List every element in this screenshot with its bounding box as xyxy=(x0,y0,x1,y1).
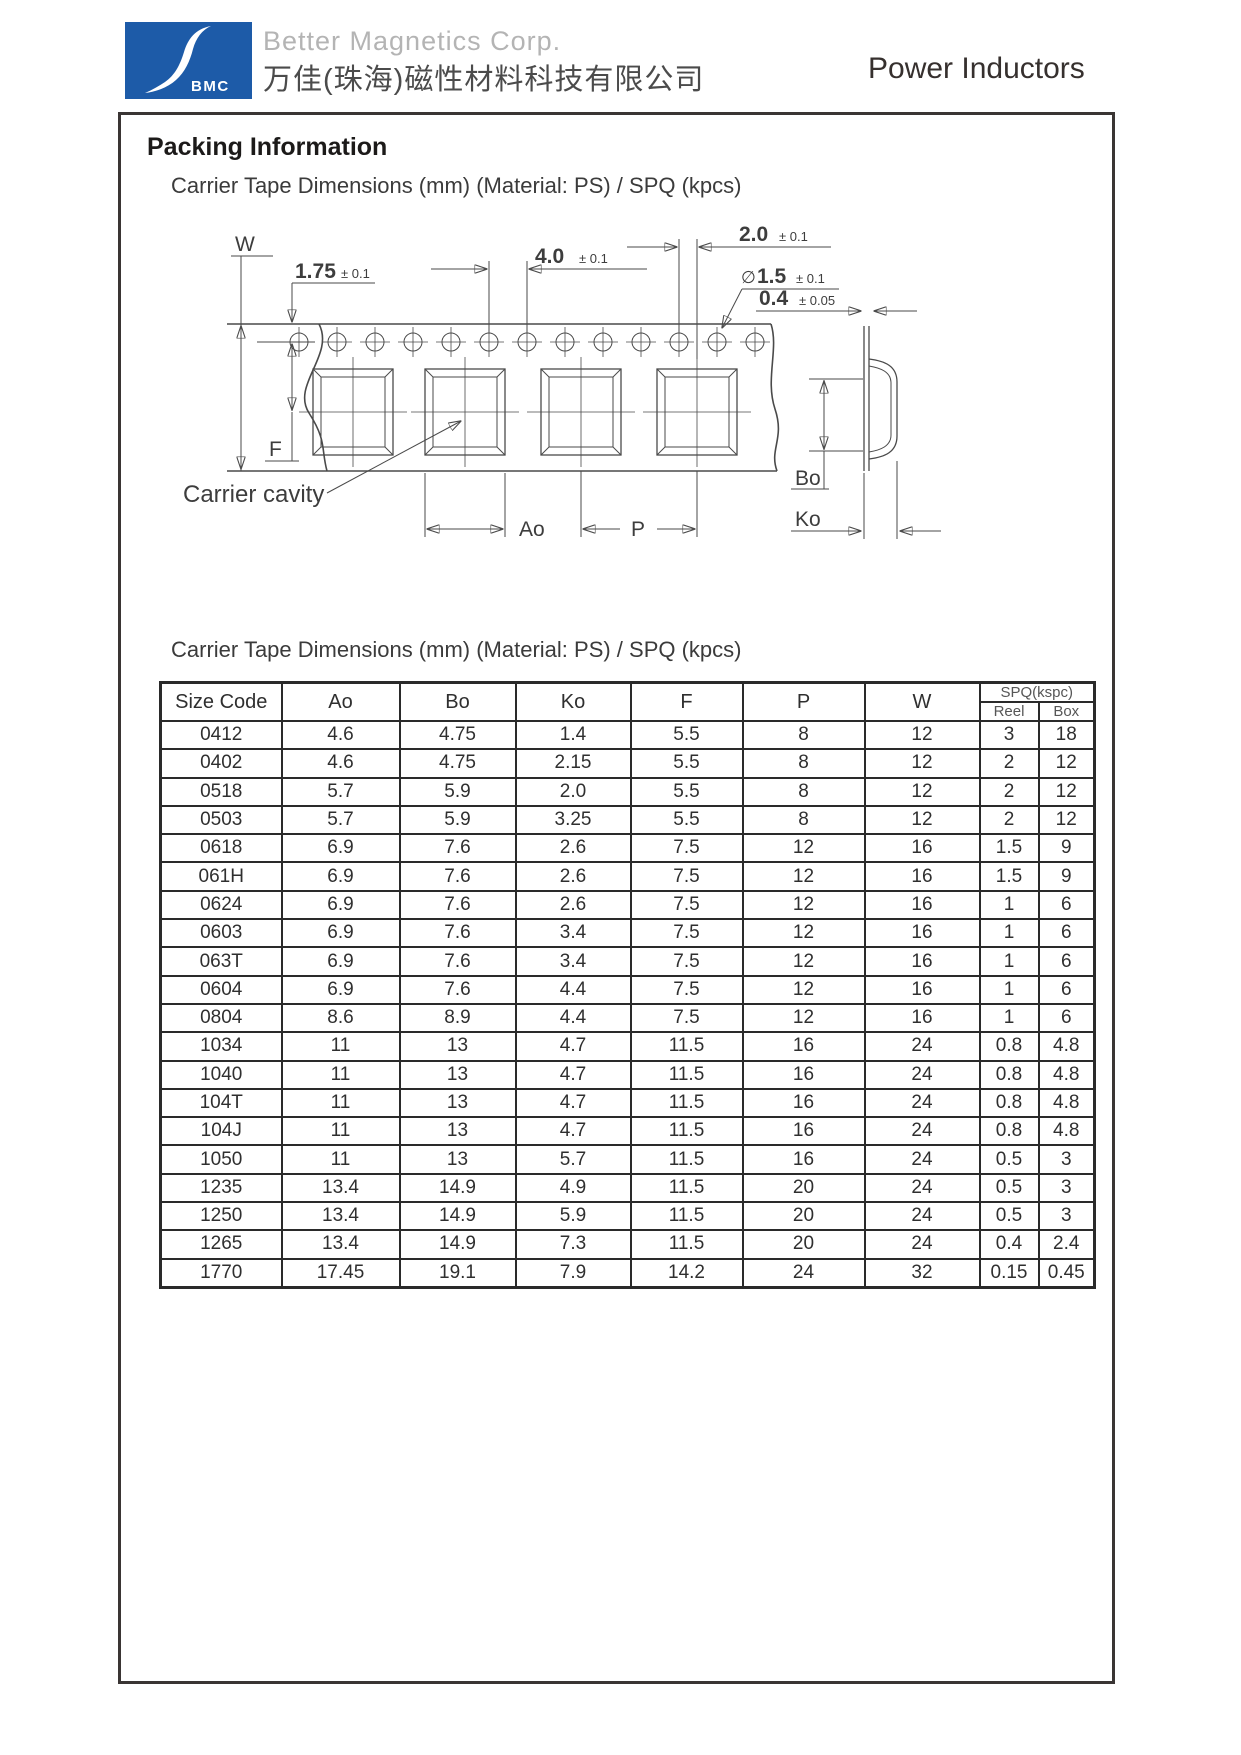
section-title: Packing Information xyxy=(147,133,387,162)
table-cell: 2 xyxy=(980,806,1039,834)
carrier-tape-drawing: W 1.75 ± 0.1 F 4.0 ± 0.1 xyxy=(179,199,949,559)
bmc-logo: BMC xyxy=(125,22,252,99)
table-cell: 7.9 xyxy=(516,1259,631,1288)
table-cell: 4.7 xyxy=(516,1089,631,1117)
table-cell: 0.5 xyxy=(980,1174,1039,1202)
table-cell: 1.5 xyxy=(980,862,1039,890)
table-cell: 13.4 xyxy=(282,1230,400,1258)
table-cell: 1.4 xyxy=(516,721,631,749)
col-header-size-code: Size Code xyxy=(161,683,282,722)
table-row: 04024.64.752.155.5812212 xyxy=(161,749,1095,777)
table-cell: 14.9 xyxy=(400,1230,516,1258)
section-cavity-outer xyxy=(869,359,897,459)
table-row: 08048.68.94.47.5121616 xyxy=(161,1004,1095,1032)
col-header-f: F xyxy=(631,683,743,722)
table-cell: 1.5 xyxy=(980,834,1039,862)
table-row: 104J11134.711.516240.84.8 xyxy=(161,1117,1095,1145)
table-cell: 7.6 xyxy=(400,947,516,975)
table-cell: 7.3 xyxy=(516,1230,631,1258)
table-cell: 0518 xyxy=(161,778,282,806)
table-cell: 12 xyxy=(865,749,980,777)
table-cell: 24 xyxy=(865,1032,980,1060)
table-cell: 13 xyxy=(400,1061,516,1089)
table-cell: 6 xyxy=(1039,919,1095,947)
table-cell: 14.9 xyxy=(400,1202,516,1230)
table-cell: 18 xyxy=(1039,721,1095,749)
col-header-box: Box xyxy=(1039,702,1095,721)
tape-torn-edge-right xyxy=(771,324,778,471)
table-cell: 11 xyxy=(282,1117,400,1145)
table-cell: 2.6 xyxy=(516,862,631,890)
diagram-title: Carrier Tape Dimensions (mm) (Material: … xyxy=(171,173,742,199)
table-cell: 14.9 xyxy=(400,1174,516,1202)
table-cell: 0603 xyxy=(161,919,282,947)
table-cell: 1250 xyxy=(161,1202,282,1230)
table-cell: 0.45 xyxy=(1039,1259,1095,1288)
carrier-tape-dimensions-table: Size Code Ao Bo Ko F P W SPQ(kspc) Reel … xyxy=(159,681,1096,1289)
table-cell: 3.4 xyxy=(516,947,631,975)
col-header-spq: SPQ(kspc) xyxy=(980,683,1095,703)
table-cell: 12 xyxy=(1039,778,1095,806)
table-cell: 8 xyxy=(743,721,865,749)
table-cell: 12 xyxy=(865,721,980,749)
table-cell: 7.5 xyxy=(631,919,743,947)
table-cell: 9 xyxy=(1039,862,1095,890)
content-frame: Packing Information Carrier Tape Dimensi… xyxy=(118,112,1115,1684)
table-cell: 1 xyxy=(980,919,1039,947)
table-cell: 0.5 xyxy=(980,1145,1039,1173)
table-cell: 7.6 xyxy=(400,834,516,862)
table-cell: 1 xyxy=(980,976,1039,1004)
table-cell: 7.5 xyxy=(631,862,743,890)
table-cell: 13.4 xyxy=(282,1202,400,1230)
table-cell: 1034 xyxy=(161,1032,282,1060)
table-cell: 4.6 xyxy=(282,721,400,749)
table-cell: 20 xyxy=(743,1230,865,1258)
table-cell: 5.7 xyxy=(516,1145,631,1173)
table-cell: 5.9 xyxy=(400,806,516,834)
table-cell: 6 xyxy=(1039,947,1095,975)
table-cell: 13 xyxy=(400,1145,516,1173)
table-cell: 4.8 xyxy=(1039,1032,1095,1060)
carrier-cavity-label: Carrier cavity xyxy=(183,481,324,508)
dim-hole-to-cavity-tol: ± 0.1 xyxy=(779,229,808,244)
table-cell: 4.8 xyxy=(1039,1089,1095,1117)
table-cell: 24 xyxy=(865,1230,980,1258)
dim-thickness: 0.4 xyxy=(759,287,789,310)
table-cell: 16 xyxy=(865,1004,980,1032)
table-cell: 12 xyxy=(865,806,980,834)
table-cell: 32 xyxy=(865,1259,980,1288)
dim-sprocket-edge-tol: ± 0.1 xyxy=(341,266,370,281)
carrier-cavities xyxy=(299,357,751,467)
table-cell: 12 xyxy=(743,947,865,975)
table-cell: 0.8 xyxy=(980,1089,1039,1117)
table-cell: 4.7 xyxy=(516,1032,631,1060)
table-cell: 0.8 xyxy=(980,1032,1039,1060)
table-cell: 104J xyxy=(161,1117,282,1145)
table-cell: 11.5 xyxy=(631,1117,743,1145)
table-row: 06046.97.64.47.5121616 xyxy=(161,976,1095,1004)
table-cell: 24 xyxy=(865,1061,980,1089)
table-cell: 0804 xyxy=(161,1004,282,1032)
table-row: 061H6.97.62.67.512161.59 xyxy=(161,862,1095,890)
table-cell: 11.5 xyxy=(631,1145,743,1173)
table-cell: 11.5 xyxy=(631,1230,743,1258)
dim-hole-dia-tol: ± 0.1 xyxy=(796,271,825,286)
table-cell: 24 xyxy=(865,1117,980,1145)
table-cell: 20 xyxy=(743,1174,865,1202)
table-cell: 6.9 xyxy=(282,834,400,862)
table-cell: 12 xyxy=(743,862,865,890)
table-row: 103411134.711.516240.84.8 xyxy=(161,1032,1095,1060)
table-cell: 2.15 xyxy=(516,749,631,777)
table-cell: 6.9 xyxy=(282,919,400,947)
table-cell: 16 xyxy=(865,947,980,975)
table-cell: 2 xyxy=(980,778,1039,806)
col-header-p: P xyxy=(743,683,865,722)
table-cell: 8 xyxy=(743,778,865,806)
table-cell: 11.5 xyxy=(631,1089,743,1117)
table-cell: 0.5 xyxy=(980,1202,1039,1230)
table-cell: 0412 xyxy=(161,721,282,749)
table-cell: 20 xyxy=(743,1202,865,1230)
table-cell: 4.6 xyxy=(282,749,400,777)
col-header-reel: Reel xyxy=(980,702,1039,721)
table-cell: 12 xyxy=(743,976,865,1004)
table-row: 125013.414.95.911.520240.53 xyxy=(161,1202,1095,1230)
table-cell: 1 xyxy=(980,1004,1039,1032)
table-cell: 1235 xyxy=(161,1174,282,1202)
table-cell: 6 xyxy=(1039,976,1095,1004)
table-cell: 16 xyxy=(743,1145,865,1173)
table-cell: 17.45 xyxy=(282,1259,400,1288)
col-header-ao: Ao xyxy=(282,683,400,722)
dim-p-label: P xyxy=(631,518,645,541)
table-cell: 1265 xyxy=(161,1230,282,1258)
table-cell: 7.6 xyxy=(400,919,516,947)
table-cell: 16 xyxy=(865,976,980,1004)
table-cell: 16 xyxy=(865,862,980,890)
table-cell: 7.5 xyxy=(631,947,743,975)
table-cell: 12 xyxy=(865,778,980,806)
table-cell: 063T xyxy=(161,947,282,975)
table-cell: 0618 xyxy=(161,834,282,862)
table-cell: 7.5 xyxy=(631,976,743,1004)
table-row: 104011134.711.516240.84.8 xyxy=(161,1061,1095,1089)
table-cell: 1040 xyxy=(161,1061,282,1089)
table-row: 06186.97.62.67.512161.59 xyxy=(161,834,1095,862)
table-row: 04124.64.751.45.5812318 xyxy=(161,721,1095,749)
table-cell: 4.75 xyxy=(400,721,516,749)
table-cell: 11.5 xyxy=(631,1202,743,1230)
table-cell: 0.4 xyxy=(980,1230,1039,1258)
table-cell: 2.6 xyxy=(516,834,631,862)
table-cell: 2.4 xyxy=(1039,1230,1095,1258)
table-cell: 24 xyxy=(743,1259,865,1288)
table-cell: 7.6 xyxy=(400,891,516,919)
table-row: 06036.97.63.47.5121616 xyxy=(161,919,1095,947)
table-cell: 5.5 xyxy=(631,749,743,777)
table-cell: 0503 xyxy=(161,806,282,834)
product-line-title: Power Inductors xyxy=(868,52,1085,86)
table-cell: 14.2 xyxy=(631,1259,743,1288)
table-cell: 12 xyxy=(743,919,865,947)
table-cell: 8 xyxy=(743,806,865,834)
table-cell: 11.5 xyxy=(631,1061,743,1089)
table-cell: 1050 xyxy=(161,1145,282,1173)
table-cell: 13 xyxy=(400,1032,516,1060)
table-row: 104T11134.711.516240.84.8 xyxy=(161,1089,1095,1117)
table-cell: 6.9 xyxy=(282,976,400,1004)
table-cell: 2 xyxy=(980,749,1039,777)
table-cell: 11 xyxy=(282,1032,400,1060)
table-cell: 8.6 xyxy=(282,1004,400,1032)
table-cell: 16 xyxy=(865,891,980,919)
table-cell: 3.25 xyxy=(516,806,631,834)
table-cell: 4.8 xyxy=(1039,1117,1095,1145)
table-row: 06246.97.62.67.5121616 xyxy=(161,891,1095,919)
table-cell: 104T xyxy=(161,1089,282,1117)
table-cell: 4.4 xyxy=(516,976,631,1004)
table-cell: 2.6 xyxy=(516,891,631,919)
table-cell: 7.6 xyxy=(400,862,516,890)
table-title: Carrier Tape Dimensions (mm) (Material: … xyxy=(171,637,742,663)
table-cell: 16 xyxy=(743,1032,865,1060)
table-row: 05035.75.93.255.5812212 xyxy=(161,806,1095,834)
col-header-ko: Ko xyxy=(516,683,631,722)
table-cell: 9 xyxy=(1039,834,1095,862)
company-name-zh: 万佳(珠海)磁性材料科技有限公司 xyxy=(263,56,704,98)
table-cell: 4.7 xyxy=(516,1117,631,1145)
table-cell: 11 xyxy=(282,1145,400,1173)
table-cell: 12 xyxy=(743,891,865,919)
table-cell: 3 xyxy=(1039,1174,1095,1202)
table-cell: 1770 xyxy=(161,1259,282,1288)
table-cell: 11 xyxy=(282,1061,400,1089)
table-cell: 6 xyxy=(1039,891,1095,919)
table-cell: 16 xyxy=(743,1117,865,1145)
table-cell: 3 xyxy=(1039,1202,1095,1230)
table-cell: 11.5 xyxy=(631,1174,743,1202)
dim-bo-label: Bo xyxy=(795,467,821,490)
logo-text: BMC xyxy=(191,78,230,95)
table-cell: 13 xyxy=(400,1089,516,1117)
table-cell: 4.9 xyxy=(516,1174,631,1202)
table-cell: 16 xyxy=(743,1061,865,1089)
table-cell: 0402 xyxy=(161,749,282,777)
dim-hole-to-cavity: 2.0 xyxy=(739,223,768,246)
table-cell: 0624 xyxy=(161,891,282,919)
table-cell: 11 xyxy=(282,1089,400,1117)
table-cell: 7.5 xyxy=(631,891,743,919)
table-cell: 061H xyxy=(161,862,282,890)
table-cell: 12 xyxy=(1039,749,1095,777)
table-cell: 5.9 xyxy=(516,1202,631,1230)
table-cell: 7.5 xyxy=(631,1004,743,1032)
table-cell: 5.9 xyxy=(400,778,516,806)
table-cell: 7.6 xyxy=(400,976,516,1004)
table-cell: 12 xyxy=(743,834,865,862)
table-cell: 13.4 xyxy=(282,1174,400,1202)
dim-hole-dia: 1.5 xyxy=(757,265,787,288)
table-cell: 16 xyxy=(743,1089,865,1117)
table-cell: 16 xyxy=(865,834,980,862)
col-header-w: W xyxy=(865,683,980,722)
dim-thickness-tol: ± 0.05 xyxy=(799,293,835,308)
table-cell: 0.15 xyxy=(980,1259,1039,1288)
table-cell: 16 xyxy=(865,919,980,947)
section-cavity-inner xyxy=(869,366,891,452)
table-cell: 5.7 xyxy=(282,806,400,834)
table-cell: 5.5 xyxy=(631,806,743,834)
dim-dia-symbol: ∅ xyxy=(741,268,756,287)
table-row: 105011135.711.516240.53 xyxy=(161,1145,1095,1173)
dim-hole-pitch-tol: ± 0.1 xyxy=(579,251,608,266)
table-cell: 7.5 xyxy=(631,834,743,862)
table-cell: 13 xyxy=(400,1117,516,1145)
table-cell: 3 xyxy=(980,721,1039,749)
table-cell: 24 xyxy=(865,1202,980,1230)
table-cell: 19.1 xyxy=(400,1259,516,1288)
table-cell: 3 xyxy=(1039,1145,1095,1173)
dim-hole-pitch: 4.0 xyxy=(535,245,564,268)
table-row: 123513.414.94.911.520240.53 xyxy=(161,1174,1095,1202)
table-cell: 0.8 xyxy=(980,1117,1039,1145)
table-cell: 3.4 xyxy=(516,919,631,947)
table-cell: 5.5 xyxy=(631,721,743,749)
table-cell: 11.5 xyxy=(631,1032,743,1060)
table-cell: 12 xyxy=(1039,806,1095,834)
table-cell: 6.9 xyxy=(282,891,400,919)
table-cell: 8 xyxy=(743,749,865,777)
dim-ko-label: Ko xyxy=(795,508,821,531)
col-header-bo: Bo xyxy=(400,683,516,722)
table-cell: 0604 xyxy=(161,976,282,1004)
table-cell: 6 xyxy=(1039,1004,1095,1032)
dim-ao-label: Ao xyxy=(519,518,545,541)
dim-sprocket-edge: 1.75 xyxy=(295,260,336,283)
dim-w-label: W xyxy=(235,233,255,256)
table-cell: 8.9 xyxy=(400,1004,516,1032)
table-cell: 4.4 xyxy=(516,1004,631,1032)
table-cell: 1 xyxy=(980,947,1039,975)
table-cell: 5.5 xyxy=(631,778,743,806)
table-row: 177017.4519.17.914.224320.150.45 xyxy=(161,1259,1095,1288)
dim-f-label: F xyxy=(269,438,282,461)
table-cell: 2.0 xyxy=(516,778,631,806)
table-cell: 6.9 xyxy=(282,947,400,975)
table-cell: 24 xyxy=(865,1145,980,1173)
table-cell: 24 xyxy=(865,1174,980,1202)
company-name-en: Better Magnetics Corp. xyxy=(263,26,561,57)
table-cell: 1 xyxy=(980,891,1039,919)
table-cell: 6.9 xyxy=(282,862,400,890)
table-cell: 4.7 xyxy=(516,1061,631,1089)
table-cell: 0.8 xyxy=(980,1061,1039,1089)
table-cell: 12 xyxy=(743,1004,865,1032)
datasheet-page: BMC Better Magnetics Corp. 万佳(珠海)磁性材料科技有… xyxy=(0,0,1241,1755)
table-row: 063T6.97.63.47.5121616 xyxy=(161,947,1095,975)
tape-torn-edge-left xyxy=(305,324,327,471)
table-row: 126513.414.97.311.520240.42.4 xyxy=(161,1230,1095,1258)
table-row: 05185.75.92.05.5812212 xyxy=(161,778,1095,806)
table-cell: 24 xyxy=(865,1089,980,1117)
table-cell: 4.8 xyxy=(1039,1061,1095,1089)
table-cell: 4.75 xyxy=(400,749,516,777)
table-cell: 5.7 xyxy=(282,778,400,806)
